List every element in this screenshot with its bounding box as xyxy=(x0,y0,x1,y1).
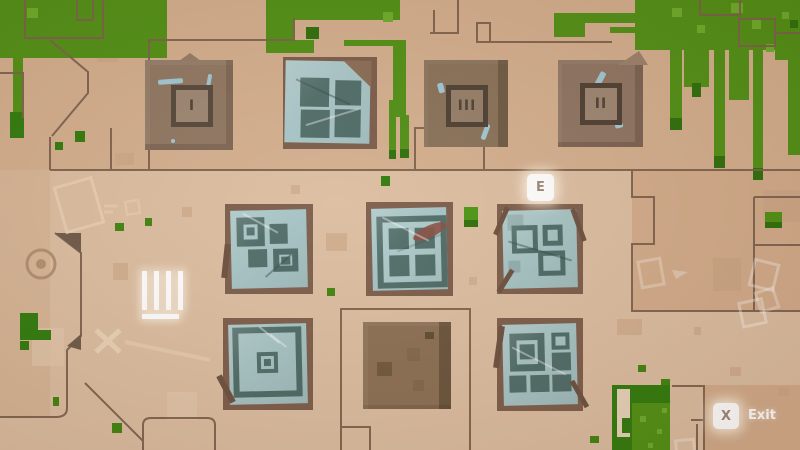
panel-face xyxy=(230,209,308,289)
interact-key-letter: E xyxy=(536,180,545,195)
tally-bar xyxy=(142,271,147,310)
numeral-text: I xyxy=(189,99,195,113)
panel-face xyxy=(502,323,578,406)
scratch-mark xyxy=(158,78,183,85)
interact-key-prompt[interactable]: E xyxy=(527,174,554,201)
storage-tile-brown xyxy=(363,322,451,409)
panel-face xyxy=(371,207,448,291)
exit-label: Exit xyxy=(748,408,776,423)
scratch-mark xyxy=(306,108,359,126)
concentric-square xyxy=(236,217,265,247)
ground-left-strip xyxy=(0,170,50,418)
tally-bar xyxy=(178,271,183,310)
numeral-text: II xyxy=(595,97,607,111)
panel-tile-mixed-squares xyxy=(497,318,583,411)
panel-face xyxy=(502,209,578,289)
square-core xyxy=(281,257,290,265)
solid-square xyxy=(269,224,287,244)
solid-square xyxy=(552,352,571,370)
outline-square-large xyxy=(232,326,303,398)
window-panel-tile xyxy=(283,57,377,149)
concentric-square xyxy=(273,248,299,272)
window-block xyxy=(376,215,448,289)
window-pane xyxy=(334,109,360,137)
outline-square xyxy=(511,225,538,254)
concentric-square xyxy=(509,333,545,372)
solid-square xyxy=(552,374,571,391)
square-core xyxy=(264,359,271,366)
panel-tile-large-window xyxy=(366,202,453,296)
window-pane xyxy=(300,110,329,139)
square-mid xyxy=(261,356,274,369)
crack-line xyxy=(508,241,572,262)
panel-tile-squares xyxy=(225,204,313,294)
shrine-tile-iii: III xyxy=(424,60,508,147)
window-pane xyxy=(300,78,330,108)
scratch-mark xyxy=(270,334,287,348)
crack-line xyxy=(397,233,442,252)
solid-square xyxy=(530,375,549,392)
panel-face xyxy=(284,60,370,143)
crack-line xyxy=(296,78,351,105)
outline-square xyxy=(551,332,569,349)
crack-line xyxy=(265,254,292,278)
panel-tile-outlined-squares xyxy=(497,204,583,294)
panel-tile-target xyxy=(223,318,313,410)
square-core xyxy=(247,227,255,235)
solid-square xyxy=(509,375,526,392)
numeral-plate: III xyxy=(446,85,488,127)
dark-square xyxy=(377,362,392,376)
window-mullion xyxy=(389,248,435,255)
scratch-mark xyxy=(259,326,281,344)
tally-marks xyxy=(142,271,194,321)
exit-key-prompt[interactable]: X xyxy=(713,403,739,429)
numeral-plate: II xyxy=(580,83,622,125)
outline-square xyxy=(542,224,562,245)
leaf-debris xyxy=(411,218,449,244)
solid-square xyxy=(248,249,267,267)
panel-face xyxy=(228,323,308,405)
window-frame xyxy=(382,221,441,282)
numeral-plate: I xyxy=(171,85,213,127)
scratch-mark xyxy=(382,217,429,242)
broken-corner xyxy=(335,60,371,88)
window-pane xyxy=(335,80,361,105)
scratch-mark xyxy=(171,139,175,143)
scratch-mark xyxy=(437,82,445,93)
ghost-square xyxy=(507,214,523,230)
shrine-tile-ii: II xyxy=(558,60,643,147)
numeral-text: III xyxy=(458,99,477,113)
square-core xyxy=(520,344,535,359)
shrine-tile-i: I xyxy=(145,60,233,150)
tally-bar xyxy=(166,271,171,310)
scratch-mark xyxy=(512,347,567,376)
tally-bar-group xyxy=(142,271,194,314)
tally-underline xyxy=(142,314,179,319)
faint-square xyxy=(407,348,420,361)
tally-bar xyxy=(154,271,159,310)
scratch-mark xyxy=(242,213,278,234)
dark-square xyxy=(425,332,434,339)
concentric-square xyxy=(257,352,278,373)
faint-square xyxy=(413,380,424,391)
window-mullion xyxy=(409,228,416,276)
exit-key-letter: X xyxy=(721,409,731,424)
outline-square xyxy=(538,250,566,276)
game-viewport: I III II xyxy=(0,0,800,450)
